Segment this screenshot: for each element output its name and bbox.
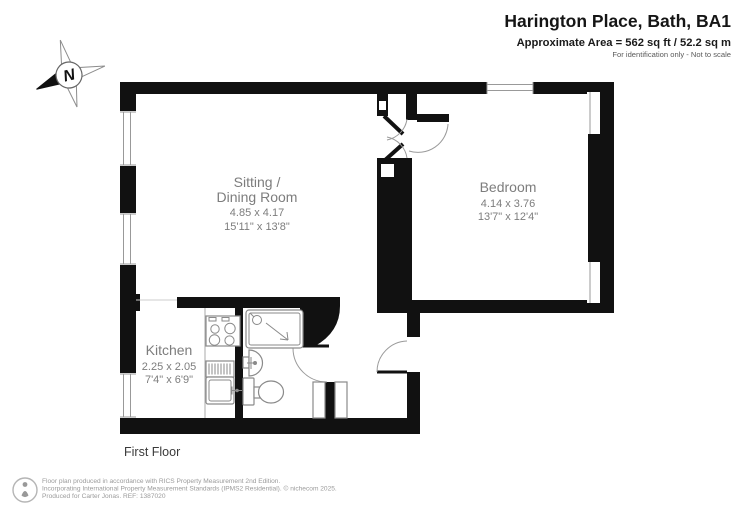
wall-bedroom-bottom (377, 300, 614, 313)
bedroom-door-arc (409, 124, 448, 152)
footer-line3: Produced for Carter Jonas. REF: 1387020 (42, 493, 166, 500)
window-left2-cut (119, 213, 136, 265)
page-title: Harington Place, Bath, BA1 (504, 11, 731, 31)
bedroom-label: Bedroom (480, 179, 537, 195)
kitchen-label: Kitchen (146, 342, 193, 358)
recess-right-lower (587, 262, 600, 303)
wall-vestibule-jamb-right (406, 94, 417, 120)
fixtures (205, 308, 303, 418)
bedroom-metric: 4.14 x 3.76 (481, 198, 535, 210)
kitchen-metric: 2.25 x 2.05 (142, 361, 196, 373)
footer-line1: Floor plan produced in accordance with R… (42, 478, 280, 485)
wall-hall-stub-upper (407, 313, 420, 337)
disclaimer: For identification only - Not to scale (612, 50, 731, 59)
room-labels: Sitting / Dining Room 4.85 x 4.17 15'11"… (142, 174, 538, 386)
floorplan-canvas: Harington Place, Bath, BA1 Approximate A… (0, 0, 736, 520)
shower-icon (246, 310, 303, 348)
wall-bottom (120, 418, 420, 434)
window-left1-cut (119, 111, 136, 166)
basin-icon (243, 350, 263, 376)
window-left3-cut (119, 373, 136, 418)
sitting-room-imperial: 15'11" x 13'8" (224, 221, 290, 233)
wall-hall-stub-lower (407, 372, 420, 418)
nichecom-logo-icon (13, 478, 37, 502)
header: Harington Place, Bath, BA1 Approximate A… (504, 11, 731, 59)
notch-lower-block (381, 164, 394, 177)
wall-sitting-bottom (177, 297, 320, 308)
wall-left-pier (120, 294, 140, 311)
wall-bath-jamb-mid (325, 382, 335, 418)
sitting-room-metric: 4.85 x 4.17 (230, 207, 284, 219)
footer-line2: Incorporating International Property Mea… (42, 485, 337, 493)
wall-right (600, 82, 614, 313)
bedroom-imperial: 13'7" x 12'4" (478, 211, 538, 223)
footer: Floor plan produced in accordance with R… (13, 478, 337, 502)
stove-icon (206, 316, 240, 346)
compass-north-icon: N (26, 31, 113, 115)
bath-doorway-casing-left (313, 382, 325, 418)
bath-doorway-casing-right (335, 382, 347, 418)
wall-top (120, 82, 614, 94)
sitting-room-label-line1: Sitting / (234, 174, 281, 190)
window-top-cut (487, 81, 533, 95)
vestibule-door1-leaf (384, 116, 403, 134)
bedroom-door-leaf (417, 114, 449, 122)
bathroom-door-arc (293, 348, 327, 382)
hall-door-arc (377, 341, 407, 372)
wall-bathroom-block (300, 297, 340, 346)
notch-jamb-left (379, 101, 386, 110)
wall-vestibule (377, 186, 412, 313)
recess-right-upper (587, 92, 600, 134)
toilet-icon (243, 378, 284, 405)
walls (120, 82, 614, 434)
kitchen-imperial: 7'4" x 6'9" (145, 374, 193, 386)
floor-name-label: First Floor (124, 445, 180, 459)
approximate-area: Approximate Area = 562 sq ft / 52.2 sq m (517, 37, 731, 49)
sitting-room-label-line2: Dining Room (217, 189, 298, 205)
